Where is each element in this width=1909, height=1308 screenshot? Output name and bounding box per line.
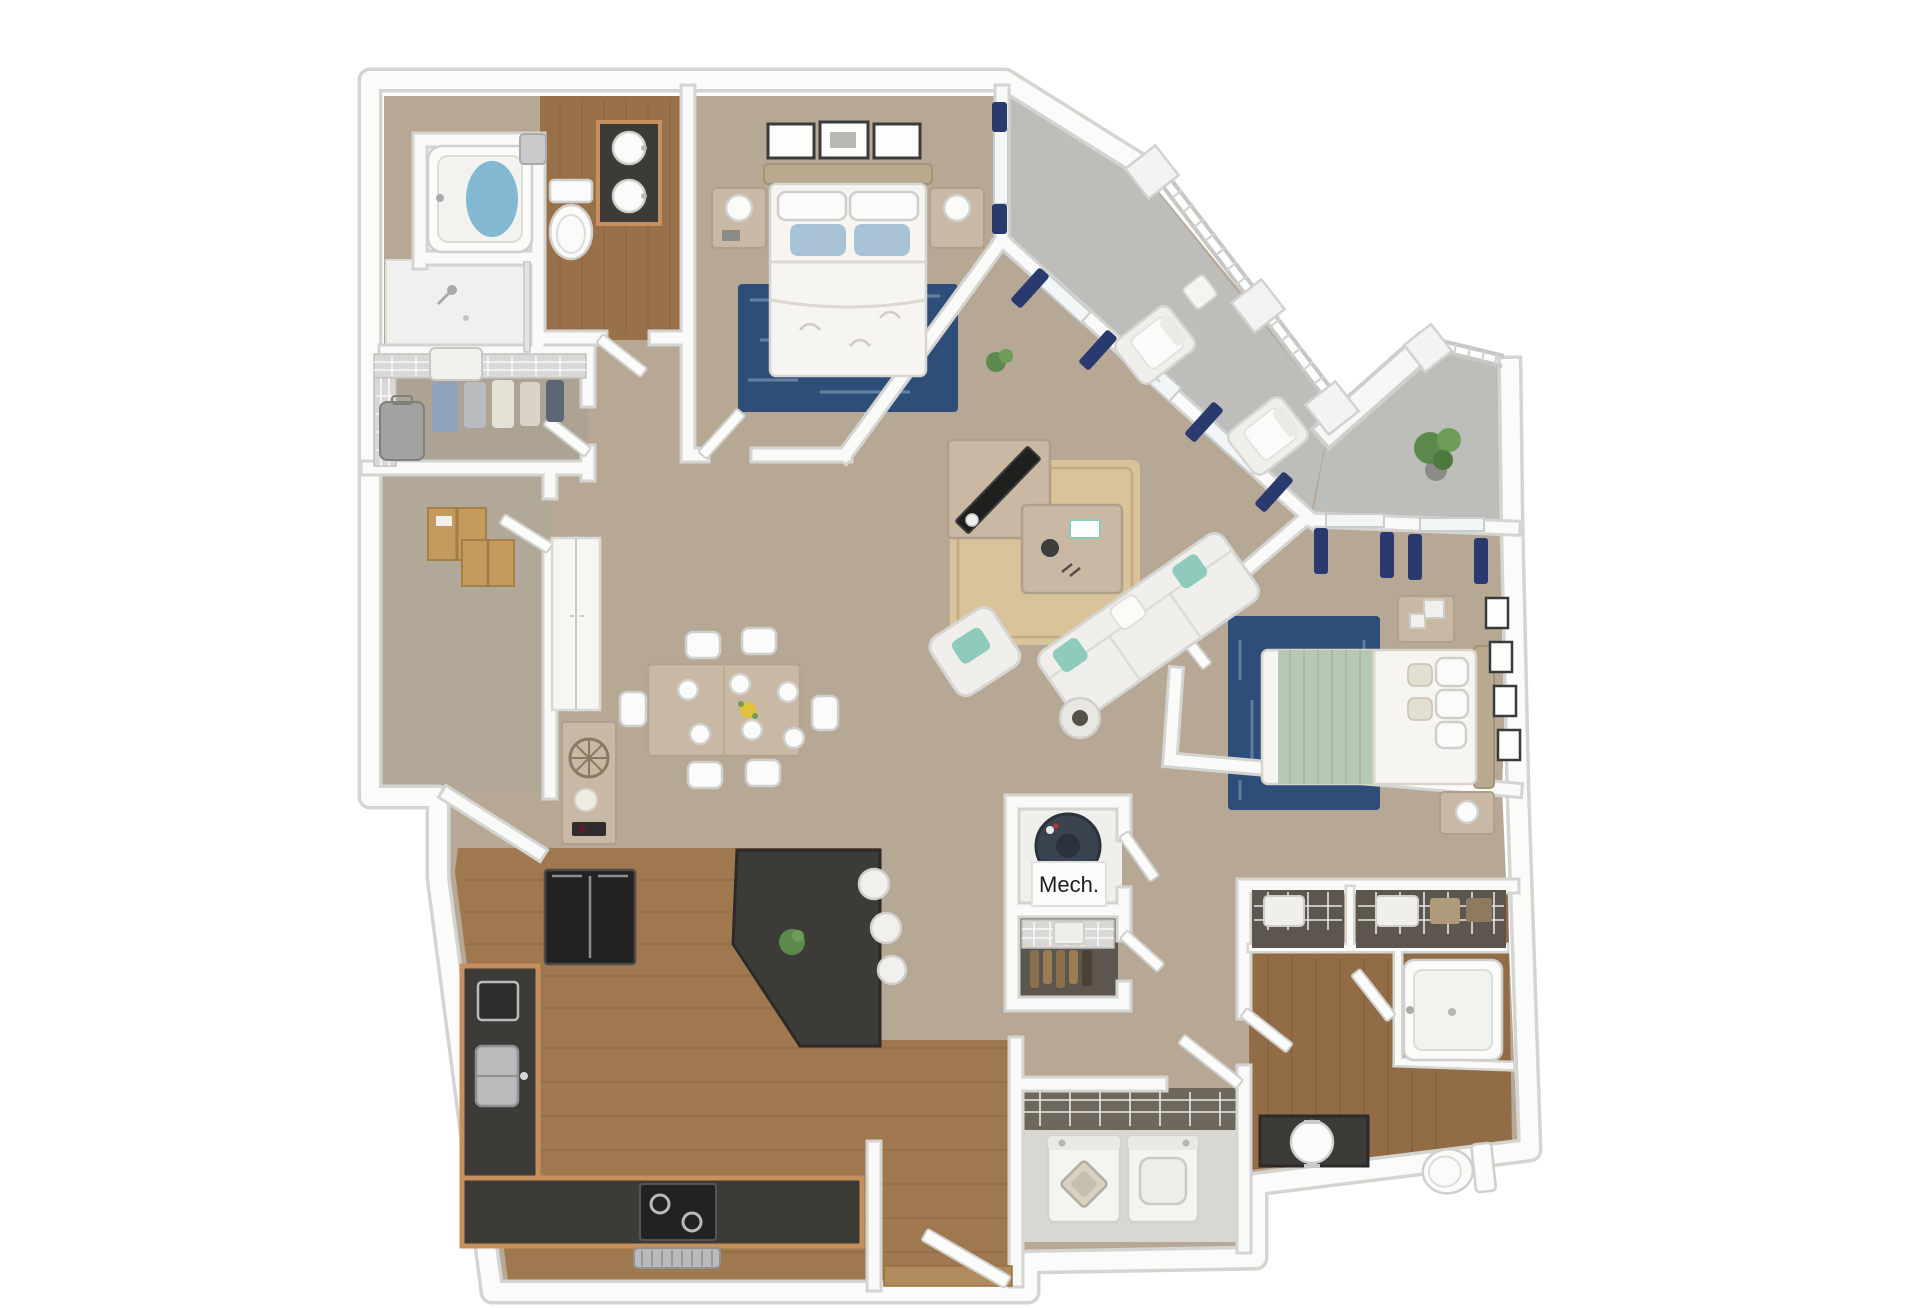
washer-knob (1059, 1140, 1066, 1147)
tv-console-decor (966, 514, 978, 526)
floor-plan-canvas: Mech. (0, 0, 1909, 1308)
dining-chair-right (812, 696, 838, 730)
shower-room-floor (386, 260, 532, 354)
floor-lamp-center (1072, 710, 1088, 726)
bed2-accent-pillow-1 (1408, 664, 1432, 686)
plate-3 (778, 682, 798, 702)
console-sphere-decor (575, 789, 597, 811)
bed1-blue-pillow-right (854, 224, 910, 256)
bed2-frame-3 (1494, 686, 1516, 716)
toilet2-tank (1471, 1143, 1496, 1193)
water-heater-warning (1054, 824, 1059, 829)
bedroom2-curtain-1 (1314, 528, 1328, 574)
bed1-headboard (764, 164, 932, 184)
bed1-lamp-right (944, 195, 970, 221)
hanging-coat-2 (1043, 950, 1052, 984)
dining-chair-top-2 (742, 628, 776, 654)
plate-4 (690, 724, 710, 744)
hanging-coat-5 (1082, 950, 1092, 986)
bed2-frame-4 (1498, 730, 1520, 760)
hanging-coat-3 (1056, 950, 1065, 988)
dining-chair-left (620, 692, 646, 726)
tub-faucet (436, 194, 444, 202)
bedroom2-curtain-4 (1474, 538, 1488, 584)
mech-room: Mech. (1032, 814, 1106, 906)
bar-stool-1 (859, 869, 889, 899)
bed2-nightstand-decor-1 (1424, 600, 1444, 618)
balcony-plant-leaf-3 (1433, 450, 1453, 470)
storage-box-label (436, 516, 452, 526)
bedroom1-window (994, 128, 1008, 204)
bed2-lamp (1456, 801, 1478, 823)
linen-closet-2-box-2 (1466, 898, 1492, 922)
hanging-shirt-blue (432, 382, 458, 432)
vanity1-sink-2 (613, 180, 645, 212)
balcony-plant-leaf-2 (1437, 428, 1461, 452)
bed1-lamp-left (726, 195, 752, 221)
plate-5 (742, 720, 762, 740)
linen-closet-1-basket (1264, 896, 1304, 926)
kitchen-faucet (520, 1072, 528, 1080)
cooktop-appliance (478, 982, 518, 1020)
bed1-pillow-right (850, 192, 918, 220)
coat-closet-box (1054, 922, 1084, 944)
bed2-pillow-3 (1436, 722, 1466, 748)
console-wine-bottle (578, 825, 586, 833)
dining-chair-top-1 (686, 632, 720, 658)
console-tray (572, 822, 606, 836)
hanging-shirt-dark (546, 380, 564, 422)
dining-chair-bottom-1 (688, 762, 722, 788)
plate-1 (678, 680, 698, 700)
water-heater-valve (1046, 826, 1054, 834)
bed2-pillow-2 (1436, 690, 1468, 718)
bathtub-2-faucet (1406, 1006, 1414, 1014)
dryer-door (1140, 1158, 1186, 1204)
toilet1-tank (550, 180, 592, 202)
linen-closet-2-basket (1376, 896, 1418, 926)
shower-drain (463, 315, 469, 321)
bedroom1-frame-3 (874, 124, 920, 158)
linen-closet-2-box-1 (1430, 898, 1460, 924)
bedroom1-curtain-top (992, 102, 1007, 132)
vanity1-sink-1 (613, 132, 645, 164)
hanging-shirt-gray (464, 382, 486, 428)
hanging-shirt-cream (492, 380, 514, 428)
vanity1-faucet-1 (641, 145, 647, 151)
bedroom2-curtain-3 (1408, 534, 1422, 580)
bar-stool-2 (871, 913, 901, 943)
bed1-book-left (722, 230, 740, 241)
coffee-table-books (1070, 520, 1100, 538)
hanging-coat-1 (1030, 950, 1039, 988)
vent-hood (634, 1248, 720, 1268)
hanging-coat-4 (1069, 950, 1078, 984)
mech-room-label: Mech. (1039, 872, 1099, 897)
coffee-table (1022, 505, 1122, 593)
bedroom1-frame-1 (768, 124, 814, 158)
dryer-knob (1183, 1140, 1190, 1147)
living-plant-leaf-2 (999, 349, 1013, 363)
plate-6 (784, 728, 804, 748)
coffee-table-vase (1041, 539, 1059, 557)
towel-ring (520, 134, 546, 164)
bedroom1-frame-art (830, 132, 856, 148)
water-heater-top (1056, 834, 1080, 858)
centerpiece-leaf-1 (738, 701, 744, 707)
bed2-accent-pillow-2 (1408, 698, 1432, 720)
bed1-blue-pillow-left (790, 224, 846, 256)
range (640, 1184, 716, 1240)
washer (1048, 1136, 1120, 1222)
plate-2 (730, 674, 750, 694)
dryer (1128, 1136, 1198, 1222)
closet-basket (430, 348, 482, 380)
shower-glass (524, 262, 530, 352)
bed2-nightstand-decor-2 (1410, 614, 1425, 628)
bedroom2-window-1 (1326, 514, 1384, 527)
bed2-frame-1 (1486, 598, 1508, 628)
bedroom2-window-2 (1420, 518, 1484, 531)
bar-stool-3 (878, 956, 906, 984)
suitcase (380, 402, 424, 460)
hanging-shirt-tan (520, 382, 540, 426)
bedroom1-curtain-bottom (992, 204, 1007, 234)
bed1-pillow-left (778, 192, 846, 220)
floor-plan-3d-render: Mech. (0, 0, 1909, 1308)
vanity1-faucet-2 (641, 193, 647, 199)
bed2-frame-2 (1490, 642, 1512, 672)
bedroom2-curtain-2 (1380, 532, 1394, 578)
dining-chair-bottom-2 (746, 760, 780, 786)
island-plant-detail (792, 930, 804, 942)
centerpiece-leaf-2 (752, 713, 758, 719)
bathtub-2-drain (1448, 1008, 1456, 1016)
tub-water (466, 161, 518, 237)
bed2-pillow-1 (1436, 658, 1468, 686)
vanity2-sink (1291, 1121, 1333, 1163)
